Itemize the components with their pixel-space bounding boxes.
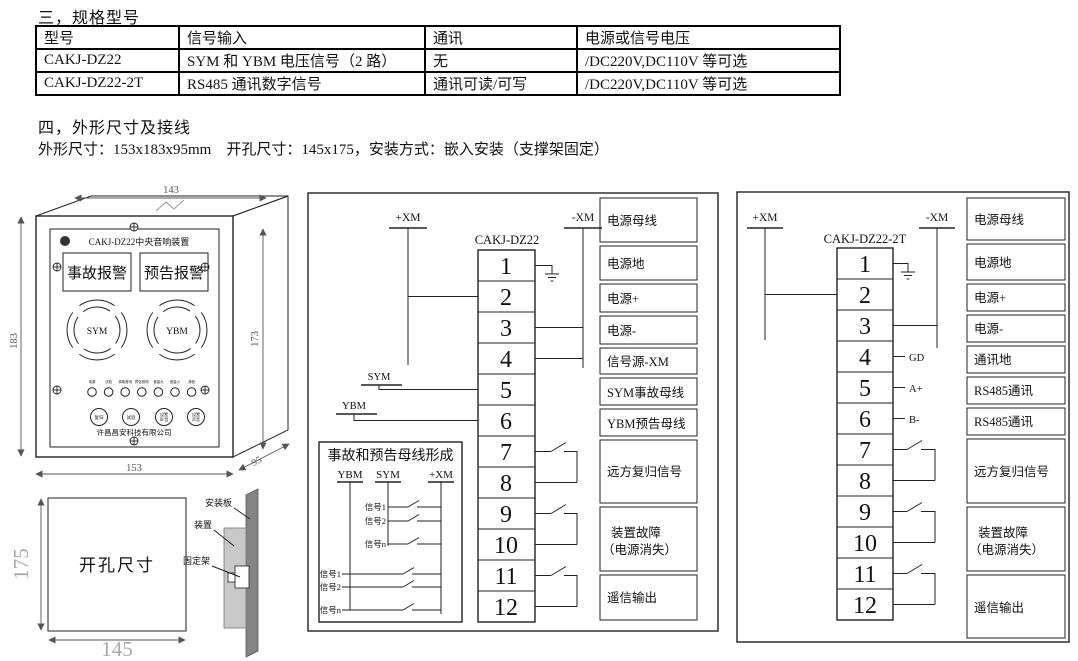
- screw-icon: [201, 386, 209, 394]
- spec-cell: 通讯可读/可写: [425, 72, 577, 95]
- spec-cell: /DC220V,DC110V 等可选: [577, 49, 840, 72]
- row-label: 远方复归信号: [974, 464, 1049, 479]
- set-volume-button-label2: 声音: [192, 416, 200, 422]
- row-label: 信号源-XM: [607, 355, 669, 369]
- cutout-label: 开孔尺寸: [79, 556, 155, 575]
- device-label: 装置: [194, 519, 212, 530]
- pin-b-label: B-: [909, 415, 920, 426]
- row-label: 装置故障: [978, 525, 1028, 540]
- reset-button-label: 复归: [95, 414, 104, 421]
- terminal-number: 10: [853, 531, 877, 557]
- pin-a-label: A+: [909, 384, 923, 395]
- terminal-number: 8: [500, 471, 512, 497]
- bracket-label: 固定架: [183, 555, 210, 566]
- row-label: 遥信输出: [607, 590, 657, 605]
- spec-table-row: CAKJ-DZ22-2T RS485 通讯数字信号 通讯可读/可写 /DC220…: [36, 72, 840, 95]
- cutout-width: 145: [101, 637, 133, 661]
- ybm-bus-label: YBM: [342, 401, 367, 412]
- terminal-number: 3: [500, 316, 512, 342]
- bus-plus-xm-label: +XM: [395, 212, 420, 224]
- terminal-number: 3: [859, 314, 871, 340]
- spec-cell: 无: [425, 49, 577, 72]
- spec-cell: SYM 和 YBM 电压信号（2 路）: [179, 49, 425, 72]
- spec-cell: /DC220V,DC110V 等可选: [577, 72, 840, 95]
- row-label: 通讯地: [974, 353, 1012, 367]
- row-label: 电源-: [974, 322, 1003, 336]
- bracket-shape: [235, 566, 249, 588]
- spec-table-header-row: 型号 信号输入 通讯 电源或信号电压: [36, 26, 840, 49]
- spec-cell: RS485 通讯数字信号: [179, 72, 425, 95]
- bus-minus-xm-label: -XM: [926, 212, 948, 224]
- dim-depth: 95: [250, 455, 264, 469]
- terminal-number: 12: [494, 595, 518, 621]
- signal-label: 信号2: [365, 516, 386, 526]
- terminal-number: 11: [853, 562, 876, 588]
- signal-label: 信号n: [320, 605, 342, 615]
- row-label: YBM预告母线: [607, 417, 686, 431]
- terminal-number: 5: [500, 378, 512, 404]
- bus-plus-xm-label: +XM: [752, 212, 777, 224]
- spec-th-model: 型号: [36, 26, 179, 49]
- accident-alarm-label: 事故报警: [67, 265, 127, 282]
- screw-icon: [53, 263, 61, 271]
- row-label: 电源+: [607, 292, 639, 306]
- device-model-label: CAKJ-DZ22-2T: [824, 232, 907, 246]
- dim-right: 173: [250, 331, 261, 347]
- row-label: RS485通讯: [974, 384, 1034, 398]
- terminal-number: 1: [500, 254, 512, 280]
- spec-table-row: CAKJ-DZ22 SYM 和 YBM 电压信号（2 路） 无 /DC220V,…: [36, 49, 840, 72]
- spec-cell: CAKJ-DZ22-2T: [36, 72, 179, 95]
- row-label: 电源母线: [974, 213, 1025, 227]
- speaker-ybm-label: YBM: [166, 327, 188, 337]
- row-label: SYM事故母线: [607, 385, 685, 400]
- spec-table: 型号 信号输入 通讯 电源或信号电压 CAKJ-DZ22 SYM 和 YBM 电…: [35, 25, 841, 96]
- dz22-wiring-diagram: +XM -XM CAKJ-DZ22 1 2 3 4 5 6 7 8 9 10 1…: [305, 190, 725, 640]
- led-label: 预告音响: [135, 379, 149, 384]
- terminal-number: 12: [853, 593, 877, 619]
- led-label: 静音: [188, 379, 195, 384]
- terminal-number: 7: [859, 438, 871, 464]
- cutout-height: 175: [9, 548, 33, 580]
- terminal-number: 11: [494, 564, 517, 590]
- terminal-number: 6: [859, 407, 871, 433]
- dim-line-depth: [239, 444, 289, 470]
- document-page: 三，规格型号 型号 信号输入 通讯 电源或信号电压 CAKJ-DZ22 SYM …: [0, 0, 1078, 661]
- top-face-marks: [156, 200, 184, 211]
- terminal-number: 1: [859, 252, 871, 278]
- led-label: 音量小: [170, 379, 181, 384]
- row-label: 装置故障: [611, 525, 661, 540]
- row-label: RS485通讯: [974, 415, 1034, 429]
- terminal-number: 2: [500, 285, 512, 311]
- row-label: 电源母线: [607, 214, 658, 228]
- forecast-alarm-label: 预告报警: [144, 265, 204, 282]
- screw-icon: [130, 223, 138, 231]
- terminal-number: 4: [859, 345, 871, 371]
- test-button-label: 试验: [127, 414, 136, 421]
- dz22-2t-wiring-diagram: +XM -XM CAKJ-DZ22-2T 1 2 3 4 5 6 7 8 9 1…: [735, 190, 1075, 650]
- bus-formation-box: 事故和预告母线形成 YBM SYM +XM 信号1 信号2 信号n 信号1 信号…: [319, 442, 462, 622]
- col-ybm: YBM: [337, 469, 362, 481]
- signal-label: 信号2: [320, 582, 341, 592]
- screw-icon: [130, 437, 138, 445]
- row-label: 电源+: [974, 291, 1006, 305]
- row-label: 遥信输出: [974, 600, 1024, 615]
- terminal-number: 4: [500, 347, 512, 373]
- row-label: 电源地: [607, 257, 645, 271]
- bus-minus-xm-label: -XM: [572, 212, 594, 224]
- terminal-number: 10: [494, 533, 518, 559]
- led-label: 音量大: [153, 379, 164, 384]
- row-label: （电源消失）: [602, 542, 677, 557]
- company-name: 许昌昌安科技有限公司: [97, 427, 172, 437]
- screw-icon: [53, 386, 61, 394]
- led-label: 试验: [105, 379, 112, 384]
- bus-formation-title: 事故和预告母线形成: [328, 448, 454, 464]
- panel-title: CAKJ-DZ22中央音响装置: [89, 236, 190, 247]
- signal-label: 信号n: [365, 539, 387, 549]
- signal-label: 信号1: [320, 569, 341, 579]
- dim-bottom: 153: [126, 463, 142, 474]
- terminal-number: 6: [500, 409, 512, 435]
- set-tone-button-label2: 声/音: [159, 416, 168, 422]
- led-label: 电源: [89, 379, 96, 384]
- pin-gd-label: GD: [909, 353, 925, 364]
- device-outline-drawing: CAKJ-DZ22中央音响装置 事故报警 预告报警 SYM YBM 电源 试验 …: [8, 183, 308, 661]
- dim-top: 143: [163, 185, 179, 196]
- col-xm: +XM: [429, 469, 453, 481]
- spec-th-voltage: 电源或信号电压: [577, 26, 840, 49]
- dim-left: 183: [9, 333, 20, 349]
- terminal-number: 7: [500, 440, 512, 466]
- led-label: 事故音响: [118, 379, 132, 384]
- enclosure-side-face: [233, 196, 288, 457]
- row-label: （电源消失）: [969, 542, 1044, 557]
- spec-th-signal: 信号输入: [179, 26, 425, 49]
- signal-label: 信号1: [365, 502, 386, 512]
- mount-plate-label: 安装板: [205, 497, 232, 508]
- brand-logo-icon: [60, 236, 70, 246]
- terminal-number: 2: [859, 283, 871, 309]
- outline-section-heading: 四，外形尺寸及接线: [38, 114, 191, 138]
- sym-bus-label: SYM: [368, 372, 391, 383]
- outline-subtitle: 外形尺寸：153x183x95mm 开孔尺寸：145x175，安装方式：嵌入安装…: [38, 138, 609, 159]
- terminal-number: 9: [500, 502, 512, 528]
- col-sym: SYM: [376, 469, 400, 481]
- spec-th-comm: 通讯: [425, 26, 577, 49]
- speaker-sym-label: SYM: [87, 327, 108, 337]
- row-label: 远方复归信号: [607, 464, 682, 479]
- terminal-number: 5: [859, 376, 871, 402]
- spec-cell: CAKJ-DZ22: [36, 49, 179, 72]
- terminal-number: 9: [859, 500, 871, 526]
- row-label: 电源地: [974, 256, 1012, 270]
- device-model-label: CAKJ-DZ22: [475, 233, 540, 247]
- terminal-number: 8: [859, 469, 871, 495]
- row-label: 电源-: [607, 324, 636, 338]
